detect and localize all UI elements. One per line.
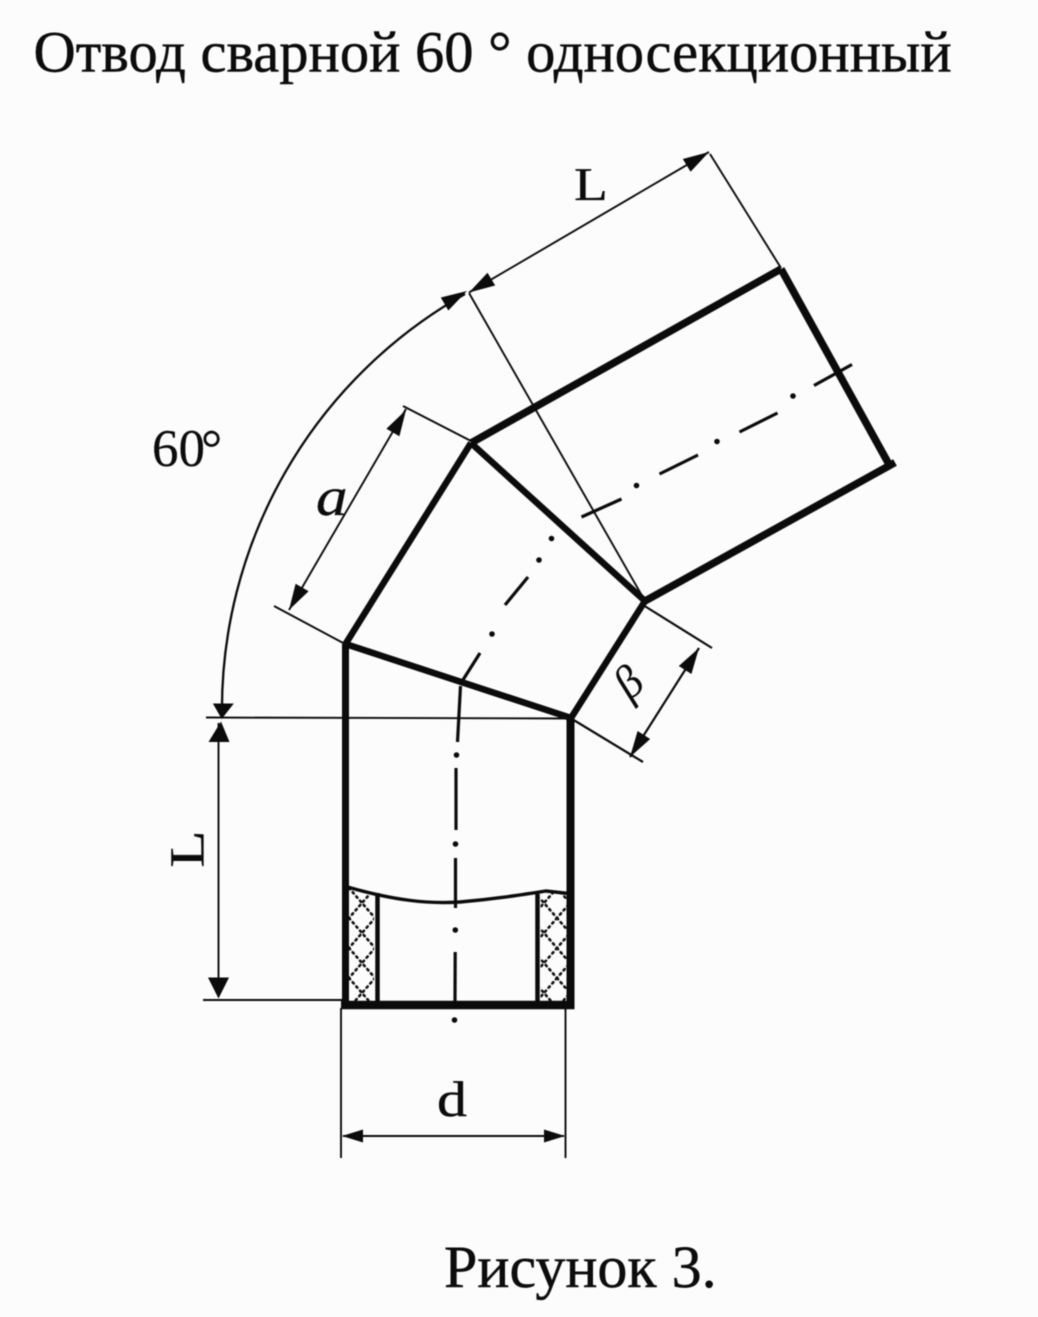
svg-text:Отвод сварной 60 ° односекцион: Отвод сварной 60 ° односекционный (34, 20, 952, 85)
svg-text:β: β (602, 655, 654, 709)
svg-text:60°: 60° (152, 420, 222, 478)
svg-text:L: L (574, 159, 608, 211)
svg-text:Рисунок 3.: Рисунок 3. (444, 1234, 717, 1300)
svg-text:L: L (160, 830, 215, 867)
svg-text:a: a (316, 466, 348, 527)
svg-text:d: d (437, 1071, 467, 1127)
